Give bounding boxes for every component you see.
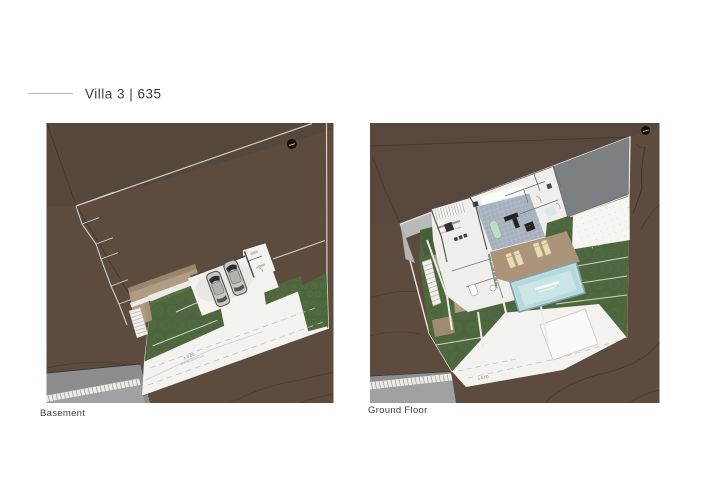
svg-text:Villa 3 | 635: Villa 3 | 635 <box>85 87 162 102</box>
svg-text:Ground Floor: Ground Floor <box>368 405 428 416</box>
svg-text:Basement: Basement <box>40 408 85 419</box>
